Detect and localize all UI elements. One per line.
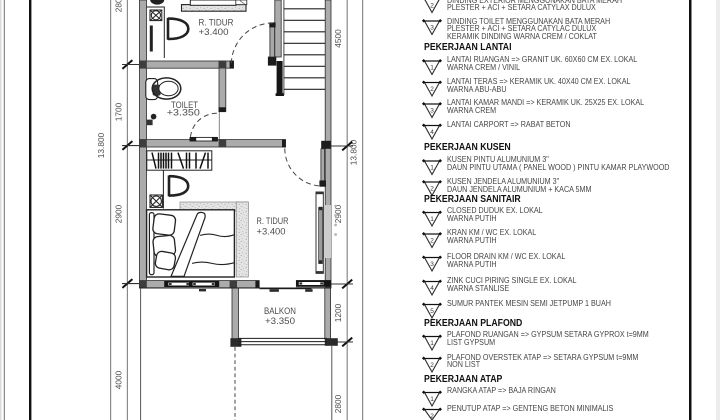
svg-text:4: 4 [430, 285, 434, 292]
svg-text:5: 5 [430, 308, 434, 315]
svg-text:2: 2 [430, 3, 434, 10]
svg-text:2: 2 [430, 362, 434, 369]
svg-text:1: 1 [430, 396, 434, 403]
svg-text:1: 1 [430, 340, 434, 347]
svg-text:1: 1 [430, 216, 434, 223]
svg-text:4: 4 [430, 129, 434, 136]
svg-text:3: 3 [430, 25, 434, 32]
svg-text:3: 3 [430, 261, 434, 268]
svg-text:2: 2 [430, 238, 434, 245]
svg-text:2: 2 [430, 413, 434, 420]
svg-text:1: 1 [430, 165, 434, 172]
svg-text:2: 2 [430, 86, 434, 93]
svg-text:2: 2 [430, 186, 434, 193]
svg-text:3: 3 [430, 108, 434, 115]
svg-text:1: 1 [430, 65, 434, 72]
